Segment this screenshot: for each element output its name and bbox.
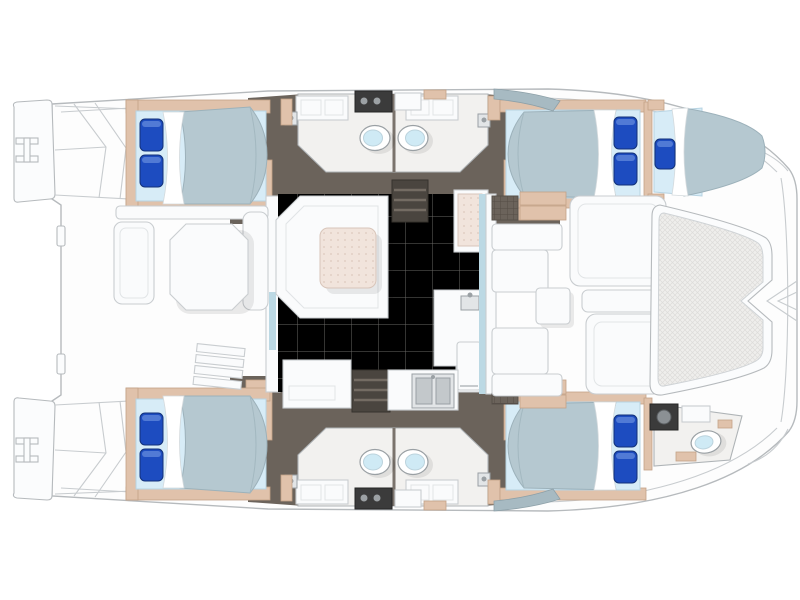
duvet	[180, 396, 267, 493]
vanity-side-port	[395, 93, 421, 110]
oven-door	[457, 342, 481, 390]
salon	[276, 180, 496, 412]
bow-head-counter	[682, 406, 710, 422]
heads-starboard-pair	[281, 428, 500, 509]
trim	[648, 100, 664, 110]
fwd-cockpit-table	[536, 288, 570, 324]
vanity-knob	[374, 495, 381, 502]
faucet-icon	[431, 375, 435, 379]
bulkhead	[644, 102, 652, 202]
cockpit-table	[170, 224, 248, 310]
fwd-cockpit-seat	[492, 250, 548, 292]
trim	[424, 90, 446, 99]
galley-sink-small	[461, 296, 479, 310]
aft-cleat-upper	[57, 226, 65, 246]
cabin-port-aft	[126, 100, 270, 212]
trim	[676, 452, 696, 461]
trim	[424, 501, 446, 510]
vanity-side-starboard	[395, 490, 421, 507]
floor-plan-canvas	[0, 0, 800, 600]
transom-starboard	[13, 398, 55, 500]
faucet-icon	[468, 293, 473, 298]
cabin-starboard-aft	[126, 388, 270, 500]
salon-front-window	[479, 194, 486, 394]
hatch-port-icon	[657, 410, 671, 424]
locker-lid	[520, 192, 566, 205]
aft-cleat-lower	[57, 354, 65, 374]
deck-grate-port	[492, 196, 518, 220]
transom-port	[13, 100, 55, 202]
duvet	[180, 107, 267, 204]
sliding-door-glass	[269, 292, 276, 350]
vanity-knob	[374, 98, 381, 105]
sink-basin	[436, 378, 450, 404]
locker-lid	[520, 395, 566, 408]
vanity-knob	[361, 98, 368, 105]
vanity-knob	[361, 495, 368, 502]
door-trim	[281, 475, 292, 501]
fwd-cockpit-bench	[492, 224, 562, 250]
locker-lid	[520, 206, 566, 220]
trim	[718, 420, 732, 428]
salon-cabinet	[283, 360, 351, 408]
fwd-cockpit-bench	[492, 374, 562, 396]
catamaran-floor-plan	[0, 0, 800, 600]
salon-table-fabric	[322, 230, 374, 286]
door-trim	[281, 99, 292, 125]
fwd-cockpit-seat	[492, 328, 548, 374]
heads-port-pair	[281, 91, 500, 172]
sink-basin	[416, 378, 432, 404]
